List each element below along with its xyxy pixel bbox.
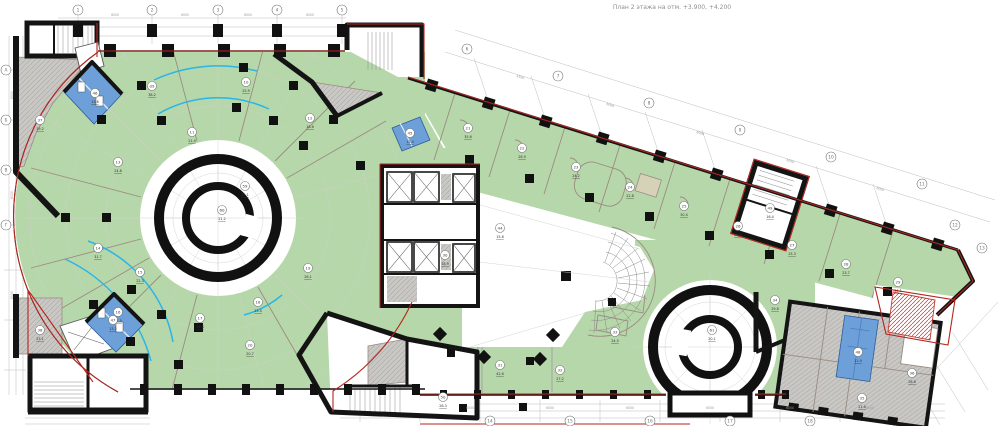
svg-text:35.6: 35.6 (464, 135, 472, 139)
svg-text:25.9: 25.9 (242, 89, 250, 93)
room-label: 2725.3 (788, 241, 797, 257)
room-label: 1719.8 (196, 314, 205, 330)
svg-text:7: 7 (557, 74, 560, 80)
svg-text:25: 25 (682, 203, 687, 208)
room-label: 0938.2 (148, 82, 157, 98)
svg-text:17: 17 (727, 419, 733, 425)
svg-text:15: 15 (138, 269, 143, 274)
svg-text:25.1: 25.1 (241, 193, 249, 197)
room-label: 1522.3 (136, 268, 145, 284)
svg-text:6000: 6000 (244, 13, 252, 17)
svg-text:28.9: 28.9 (518, 155, 526, 159)
svg-text:59: 59 (243, 183, 248, 188)
svg-text:30.4: 30.4 (680, 213, 688, 217)
svg-text:22: 22 (520, 145, 525, 150)
grid-bubble: 9 (735, 125, 745, 135)
room-label: 2934.1 (894, 278, 903, 294)
grid-bubble: 15 (565, 416, 575, 426)
room-label: 3324.5 (611, 328, 620, 344)
grid-bubble: 17 (725, 416, 735, 426)
grid-bubble: 6 (462, 44, 472, 54)
svg-text:6000: 6000 (626, 406, 634, 410)
svg-text:14: 14 (487, 419, 493, 425)
drawing-title: План 2 этажа на отм. +3.900, +4.200 (613, 4, 731, 11)
svg-text:2: 2 (151, 8, 154, 14)
svg-text:31.7: 31.7 (94, 255, 102, 259)
svg-text:47: 47 (111, 317, 116, 322)
room-label: 4512.4 (406, 129, 415, 145)
room-num: 09 (150, 83, 155, 88)
svg-text:25.3: 25.3 (788, 252, 796, 256)
svg-text:19.2: 19.2 (36, 127, 44, 131)
svg-text:4500: 4500 (516, 74, 525, 80)
svg-text:В: В (5, 168, 8, 174)
svg-text:19.8: 19.8 (196, 325, 204, 329)
room-label: 3142.6 (496, 361, 505, 377)
room-label: 3018.9 (441, 251, 450, 267)
grid-bubble: А (1, 65, 11, 75)
svg-text:26.1: 26.1 (304, 275, 312, 279)
room-label: 2823.7 (842, 260, 851, 276)
grid-bubble: 5 (337, 5, 347, 15)
svg-text:13: 13 (116, 159, 121, 164)
svg-text:32: 32 (558, 367, 563, 372)
svg-text:16: 16 (116, 309, 121, 314)
room-label: 4613.6 (91, 89, 100, 105)
grid-bubble: 3 (213, 5, 223, 15)
svg-text:20.7: 20.7 (246, 352, 254, 356)
svg-text:20.1: 20.1 (708, 337, 716, 341)
svg-text:49: 49 (768, 205, 773, 210)
floorplan-drawing: 0938.2 1025.9 1121.4 1218.6 1324.8 1431.… (0, 0, 1000, 426)
svg-text:11: 11 (919, 182, 925, 188)
svg-text:15: 15 (567, 419, 573, 425)
svg-text:5: 5 (341, 8, 344, 14)
room-label: 3626.8 (908, 369, 917, 385)
svg-text:11: 11 (190, 129, 195, 134)
svg-text:19: 19 (306, 265, 311, 270)
svg-text:29: 29 (896, 279, 901, 284)
svg-text:28.3: 28.3 (439, 404, 447, 408)
grid-bubble: 18 (805, 416, 815, 426)
svg-text:6000: 6000 (786, 158, 795, 164)
svg-text:21.2: 21.2 (218, 217, 226, 221)
svg-text:36: 36 (910, 370, 915, 375)
room-label: 1025.9 (242, 78, 251, 94)
room-label: 3823.1 (36, 326, 45, 342)
room-label: 2020.7 (246, 341, 255, 357)
svg-text:24.2: 24.2 (572, 174, 580, 178)
svg-text:6000: 6000 (786, 406, 794, 410)
room-label: 2228.9 (518, 144, 527, 160)
svg-text:24.5: 24.5 (611, 339, 619, 343)
room-label: 6120.1 (708, 326, 717, 342)
svg-text:6000: 6000 (876, 186, 885, 192)
room-label: 4916.4 (766, 204, 775, 220)
grid-bubble: 2 (147, 5, 157, 15)
svg-text:24.8: 24.8 (114, 169, 122, 173)
room-label: 4811.9 (854, 348, 863, 364)
svg-text:20: 20 (248, 342, 253, 347)
svg-text:6000: 6000 (696, 130, 705, 136)
svg-text:Г: Г (5, 223, 8, 229)
svg-text:6000: 6000 (866, 406, 874, 410)
svg-text:18.9: 18.9 (441, 262, 449, 266)
svg-text:6000: 6000 (181, 13, 189, 17)
svg-text:48: 48 (856, 349, 861, 354)
svg-text:23.1: 23.1 (36, 337, 44, 341)
svg-text:6000: 6000 (606, 102, 615, 108)
svg-text:6000: 6000 (306, 13, 314, 17)
svg-text:4: 4 (276, 8, 279, 14)
svg-text:31: 31 (498, 362, 503, 367)
svg-text:45: 45 (408, 130, 413, 135)
grid-bubble: 14 (485, 416, 495, 426)
svg-text:61: 61 (710, 327, 715, 332)
svg-text:12.4: 12.4 (406, 140, 414, 144)
grid-bubble: 7 (553, 71, 563, 81)
svg-text:21.4: 21.4 (188, 139, 196, 143)
svg-text:24: 24 (628, 184, 633, 189)
grid-bubble: 8 (644, 98, 654, 108)
svg-text:42.6: 42.6 (496, 372, 504, 376)
svg-text:29.8: 29.8 (771, 307, 779, 311)
svg-text:А: А (5, 68, 8, 74)
svg-text:50: 50 (441, 394, 446, 399)
svg-text:35: 35 (860, 395, 865, 400)
elevator-core (382, 166, 478, 306)
grid-bubble: 1 (73, 5, 83, 15)
room-label: 1218.6 (306, 114, 315, 130)
svg-text:34.1: 34.1 (894, 289, 902, 293)
svg-text:60: 60 (220, 207, 225, 212)
svg-text:23.7: 23.7 (842, 271, 850, 275)
svg-text:34: 34 (773, 297, 778, 302)
svg-text:6000: 6000 (10, 191, 14, 199)
room-label: 2621.9 (734, 222, 743, 238)
svg-text:16: 16 (647, 419, 653, 425)
svg-text:6: 6 (466, 47, 469, 53)
svg-text:12: 12 (952, 223, 958, 229)
svg-text:16.4: 16.4 (766, 215, 774, 219)
grid-bubble: 4 (272, 5, 282, 15)
svg-text:6000: 6000 (706, 406, 714, 410)
room-area: 38.2 (148, 93, 156, 97)
room-label: 3719.2 (36, 116, 45, 132)
svg-text:8: 8 (648, 101, 651, 107)
room-label: 4415.8 (496, 224, 505, 240)
svg-text:13.6: 13.6 (91, 100, 99, 104)
room-label: 1823.4 (254, 298, 263, 314)
svg-text:18.6: 18.6 (306, 125, 314, 129)
svg-text:21: 21 (466, 125, 471, 130)
svg-text:33: 33 (613, 329, 618, 334)
site-plan-svg: 0938.2 1025.9 1121.4 1218.6 1324.8 1431.… (0, 0, 1000, 426)
svg-text:26.8: 26.8 (908, 380, 916, 384)
svg-text:15.8: 15.8 (496, 235, 504, 239)
room-label: 6021.2 (218, 206, 227, 222)
room-label: 1431.7 (94, 244, 103, 260)
svg-text:9: 9 (739, 128, 742, 134)
grid-bubble: Б (1, 115, 11, 125)
svg-text:27.2: 27.2 (556, 377, 564, 381)
room-label: 2135.6 (464, 124, 473, 140)
svg-text:6000: 6000 (466, 406, 474, 410)
svg-text:18: 18 (807, 419, 813, 425)
room-label: 1926.1 (304, 264, 313, 280)
svg-text:13: 13 (979, 246, 985, 252)
svg-text:46: 46 (93, 90, 98, 95)
svg-text:13.2: 13.2 (109, 327, 117, 331)
svg-text:6000: 6000 (546, 406, 554, 410)
svg-text:44: 44 (498, 225, 503, 230)
room-label: 2324.2 (572, 163, 581, 179)
svg-text:30: 30 (443, 252, 448, 257)
grid-bubble: 16 (645, 416, 655, 426)
svg-text:10: 10 (828, 155, 834, 161)
room-label: 4713.2 (109, 316, 118, 332)
room-label: 5925.1 (241, 182, 250, 198)
room-label: 3227.2 (556, 366, 565, 382)
grid-bubble: В (1, 165, 11, 175)
svg-text:21.9: 21.9 (734, 233, 742, 237)
dim-label: 6000 (111, 13, 119, 17)
room-label: 5028.3 (439, 393, 448, 409)
svg-text:17: 17 (198, 315, 203, 320)
svg-text:26: 26 (736, 223, 741, 228)
room-label: 2530.4 (680, 202, 689, 218)
svg-text:6000: 6000 (10, 291, 14, 299)
svg-text:10: 10 (244, 79, 249, 84)
svg-text:18: 18 (256, 299, 261, 304)
room-label: 3429.8 (771, 296, 780, 312)
room-label: 1121.4 (188, 128, 197, 144)
svg-text:3: 3 (217, 8, 220, 14)
grid-bubble: Г (1, 220, 11, 230)
svg-text:11.9: 11.9 (854, 359, 862, 363)
room-label: 1324.8 (114, 158, 123, 174)
svg-text:1: 1 (77, 8, 80, 14)
grid-bubble: 12 (950, 220, 960, 230)
svg-text:38: 38 (38, 327, 43, 332)
svg-text:27: 27 (790, 242, 795, 247)
grid-bubble: 10 (826, 152, 836, 162)
svg-text:12: 12 (308, 115, 313, 120)
svg-text:22.3: 22.3 (136, 279, 144, 283)
room-label: 2422.8 (626, 183, 635, 199)
grid-bubble: 13 (977, 243, 987, 253)
svg-text:21.6: 21.6 (858, 405, 866, 409)
svg-text:Б: Б (5, 118, 8, 124)
svg-text:23: 23 (574, 164, 579, 169)
grid-bubble: 11 (917, 179, 927, 189)
svg-text:28: 28 (844, 261, 849, 266)
svg-text:37: 37 (38, 117, 43, 122)
svg-text:22.8: 22.8 (626, 194, 634, 198)
svg-text:6000: 6000 (10, 91, 14, 99)
svg-text:14: 14 (96, 245, 101, 250)
svg-text:23.4: 23.4 (254, 309, 262, 313)
